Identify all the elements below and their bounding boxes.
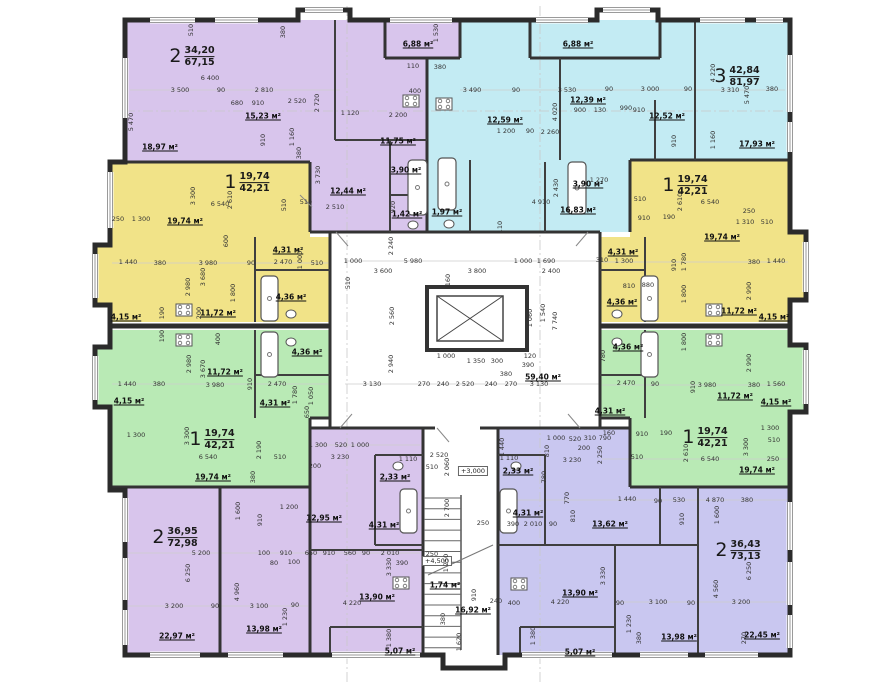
apartment-mid-left-yellow-region	[110, 162, 330, 322]
bathtub-icon	[261, 276, 278, 321]
bathtub-icon	[500, 489, 517, 533]
toilet-icon	[612, 338, 622, 346]
toilet-icon	[408, 221, 418, 229]
toilet-icon	[286, 338, 296, 346]
floor-plan: 234,2067,15342,8481,97119,7442,21119,744…	[0, 0, 890, 691]
elevator	[427, 287, 527, 350]
toilet-icon	[286, 310, 296, 318]
staircase	[424, 495, 493, 650]
toilet-icon	[511, 462, 521, 470]
floor-plan-drawing	[0, 0, 890, 691]
bathtub-icon	[641, 332, 658, 377]
toilet-icon	[393, 462, 403, 470]
bathtub-icon	[400, 489, 417, 533]
toilet-icon	[444, 220, 454, 228]
apartment-mid-left-green-region	[110, 330, 330, 487]
bathtub-icon	[408, 160, 427, 215]
bathtub-icon	[438, 158, 456, 210]
bathtub-icon	[641, 276, 658, 321]
bathtub-icon	[568, 162, 586, 214]
toilet-icon	[612, 310, 622, 318]
bathtub-icon	[261, 332, 278, 377]
